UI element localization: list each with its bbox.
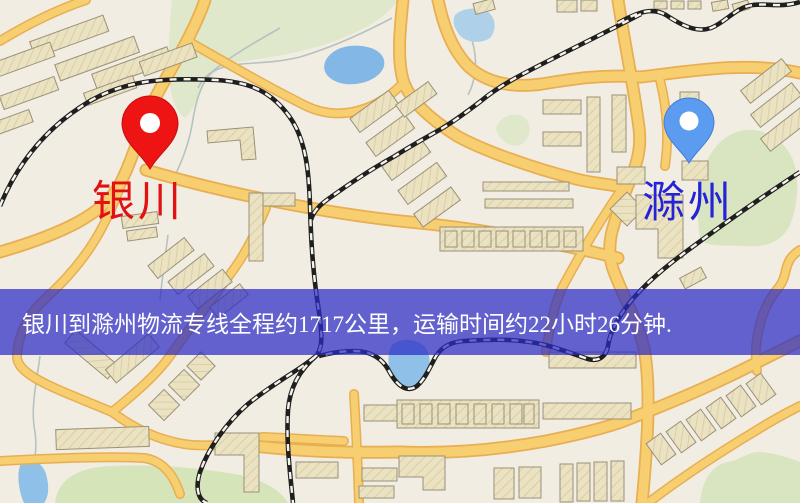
map-canvas	[0, 0, 800, 503]
route-info-text: 银川到滁州物流专线全程约1717公里，运输时间约22小时26分钟.	[0, 305, 672, 339]
logistics-route-map: 银川 滁州 银川到滁州物流专线全程约1717公里，运输时间约22小时26分钟.	[0, 0, 800, 503]
destination-pin-hole	[680, 112, 699, 131]
origin-pin-hole	[140, 113, 160, 133]
route-info-banner: 银川到滁州物流专线全程约1717公里，运输时间约22小时26分钟.	[0, 289, 800, 355]
